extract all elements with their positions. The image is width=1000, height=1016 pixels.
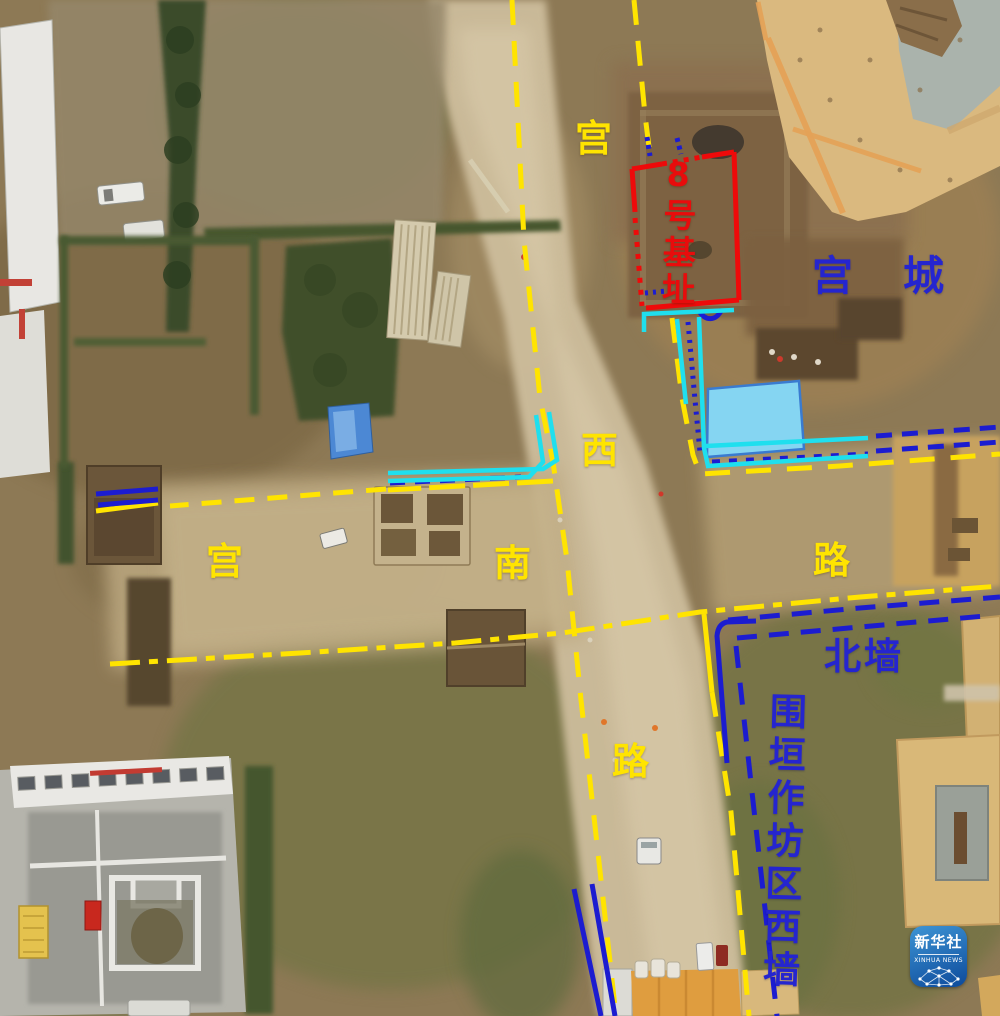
van	[637, 838, 661, 864]
rubble-area	[48, 0, 446, 242]
van-windshield	[103, 189, 113, 202]
construction-building	[0, 756, 273, 1016]
dark-pit	[948, 548, 970, 561]
excavation-pit	[427, 494, 463, 525]
white-building	[0, 20, 60, 312]
hedge	[245, 766, 273, 1014]
hedge	[58, 462, 74, 564]
dark-pit	[952, 518, 978, 533]
label-palace-west-road-char2: 西	[581, 431, 618, 471]
yellow-shed	[19, 906, 48, 958]
white-truck	[696, 942, 714, 970]
blue-tarp-highlight	[333, 410, 357, 452]
hedge-row	[60, 236, 68, 468]
label-palace-west-road-char1: 宫	[575, 119, 612, 159]
red-roof-stripe	[0, 279, 32, 286]
marker-dot	[769, 349, 775, 355]
watermark-divider	[918, 954, 959, 955]
label-palace-west-road-char3: 路	[612, 742, 649, 782]
label-palace-city: 宫城	[812, 254, 994, 298]
excavation-pit	[381, 494, 413, 523]
label-workshop-west-wall: 围垣作坊区西墙	[757, 692, 805, 994]
annotated-aerial-photo: 宫 西 路 宫 南 路 8号基址 宫城 北墙 围垣作坊区西墙 新华社 XINHU…	[0, 0, 1000, 1016]
terrain	[0, 0, 1000, 1016]
label-palace-south-road-char2: 南	[494, 544, 531, 584]
van-windshield	[641, 842, 657, 848]
label-palace-south-road-char1: 宫	[206, 542, 243, 582]
lumber-pile	[387, 220, 436, 341]
tree	[163, 261, 191, 289]
road-speck	[588, 638, 593, 643]
sack	[635, 961, 648, 978]
marker-dot	[791, 354, 797, 360]
vegetation-patch	[282, 238, 399, 421]
red-truck	[716, 945, 728, 966]
worker-dot	[777, 356, 783, 362]
xinhua-watermark: 新华社 XINHUA NEWS	[910, 926, 967, 987]
hedge-row	[60, 236, 256, 245]
tree	[164, 136, 192, 164]
bush	[304, 264, 336, 296]
excavation-trench	[127, 578, 171, 706]
label-palace-south-road-char3: 路	[813, 541, 850, 581]
label-north-wall: 北墙	[824, 637, 904, 677]
platform-step	[944, 685, 1000, 701]
aerial-photo-canvas	[0, 0, 1000, 1016]
tree	[166, 26, 194, 54]
courtyard-tree	[131, 908, 183, 964]
sack	[651, 959, 665, 977]
foundation-edge	[640, 110, 790, 116]
tree	[175, 82, 201, 108]
watermark-cn-text: 新华社	[910, 931, 967, 952]
cone-dot	[652, 725, 658, 731]
marker-dot	[815, 359, 821, 365]
wall-dotted-mark	[647, 137, 650, 156]
watermark-en-text: XINHUA NEWS	[911, 956, 965, 964]
cone-dot	[601, 719, 607, 725]
label-site-no8: 8号基址	[658, 155, 696, 310]
excavation-pit	[838, 298, 902, 340]
road-speck	[558, 518, 563, 523]
wooden-structure	[954, 812, 967, 864]
bush	[342, 292, 378, 328]
red-roof-stripe	[19, 309, 25, 339]
hedge-row	[74, 338, 206, 346]
excavation-pit	[429, 531, 460, 556]
worker-dot	[659, 492, 664, 497]
hedge-row	[250, 237, 259, 415]
constellation-dots	[918, 966, 959, 986]
van	[128, 1000, 190, 1016]
bush	[313, 353, 347, 387]
site-outline-left	[632, 169, 635, 212]
red-door	[85, 901, 101, 930]
sack	[667, 962, 680, 978]
network-constellation-icon	[915, 965, 963, 987]
excavation-pit	[381, 529, 416, 556]
tree	[173, 202, 199, 228]
